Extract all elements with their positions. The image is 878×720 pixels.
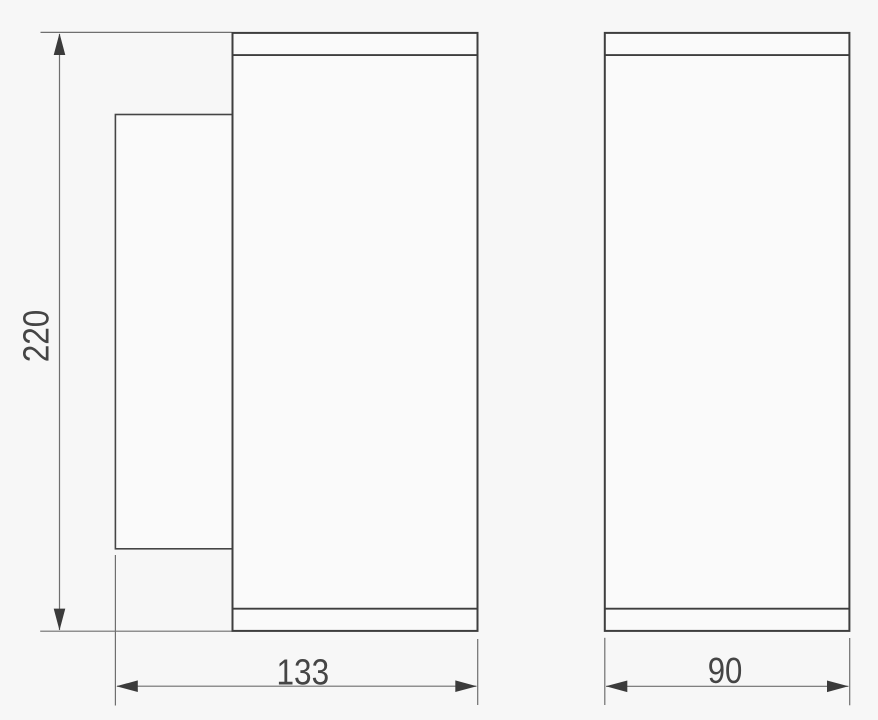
svg-text:133: 133 xyxy=(277,653,330,693)
svg-text:220: 220 xyxy=(17,310,57,363)
svg-text:90: 90 xyxy=(708,651,743,691)
